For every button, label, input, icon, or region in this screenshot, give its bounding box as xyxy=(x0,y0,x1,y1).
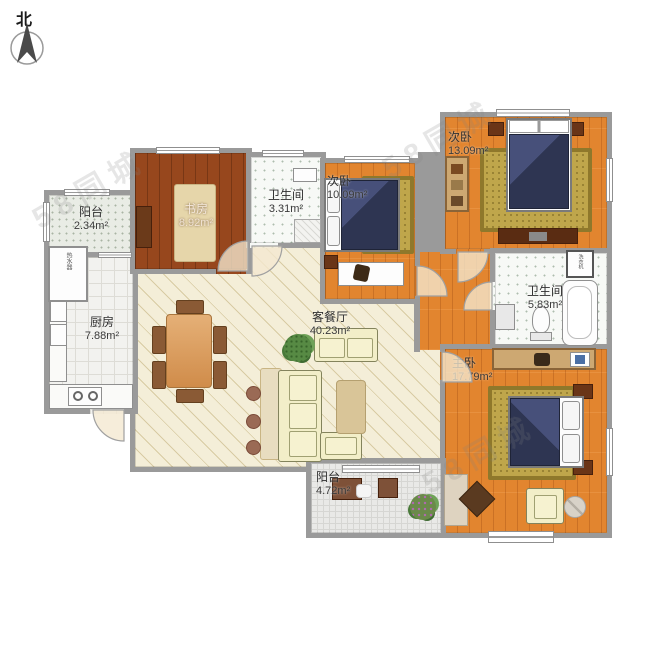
water-heater-cabinet: 热水器 xyxy=(48,246,88,302)
master-lamp xyxy=(564,496,586,518)
bay-window-master-south xyxy=(488,531,554,543)
wall-between-bedrooms xyxy=(418,152,442,252)
bedroom-a-nightstand xyxy=(324,255,338,269)
door-opening-study xyxy=(216,269,246,274)
kitchen-sink-lower xyxy=(50,324,67,346)
sofa-cushion xyxy=(289,403,317,429)
dining-table xyxy=(166,314,212,388)
decor-dot-1 xyxy=(246,386,261,401)
label-study: 书房8.92m² xyxy=(166,202,226,231)
master-armchair xyxy=(526,488,564,524)
tv-item xyxy=(529,232,547,241)
armchair-cushion xyxy=(534,495,557,519)
dining-chair-bottom xyxy=(176,389,204,403)
sliding-door-living-balcony xyxy=(342,465,420,473)
master-duvet xyxy=(510,398,560,466)
label-bedroom-b: 次卧13.09m² xyxy=(448,130,488,159)
bedroom-b-tv-stand xyxy=(498,228,578,244)
bath-main-sink xyxy=(495,304,515,330)
label-balcony-left: 阳台2.34m² xyxy=(60,205,122,234)
bedroom-b-duvet xyxy=(509,134,569,209)
bedroom-b-pillows xyxy=(509,120,569,133)
sofa-cushion xyxy=(289,431,317,457)
bedroom-b-nightstand-left xyxy=(488,122,504,136)
dining-chair-left-2 xyxy=(152,361,166,389)
door-opening-entry xyxy=(90,409,124,414)
label-living: 客餐厅40.23m² xyxy=(295,310,365,339)
washing-machine-label: 洗衣机 xyxy=(578,254,583,269)
bath-small-shower xyxy=(294,219,321,243)
wall-hall-living xyxy=(414,300,420,352)
wardrobe-item xyxy=(451,196,463,206)
water-heater-label: 热水器 xyxy=(65,252,71,270)
bedroom-a-desk xyxy=(338,262,404,286)
door-opening-bath-small xyxy=(250,243,278,248)
sofa-cushion xyxy=(347,338,373,358)
door-arc-entry xyxy=(93,410,124,441)
window-bedroom-b-east xyxy=(606,158,613,202)
window-balcony-left-west xyxy=(43,202,50,242)
wardrobe-item xyxy=(451,164,463,174)
door-balcony-kitchen xyxy=(98,252,132,258)
compass-arrow-icon xyxy=(4,20,50,66)
sofa-cushion xyxy=(325,437,357,455)
window-bedroom-b-north xyxy=(496,109,570,117)
door-opening-bedroom-a xyxy=(415,266,420,296)
window-master-east xyxy=(606,428,613,476)
door-opening-master xyxy=(440,352,445,380)
balcony-plant xyxy=(410,494,436,520)
sofa-cushion xyxy=(289,375,317,401)
label-bedroom-a: 次卧10.09m² xyxy=(327,174,367,203)
label-balcony-bottom: 阳台4.72m² xyxy=(316,470,350,499)
study-desk xyxy=(136,206,152,248)
decor-dot-2 xyxy=(246,414,261,429)
window-bath-small xyxy=(262,150,304,157)
coffee-table xyxy=(336,380,366,434)
master-pillow-bottom xyxy=(562,434,580,463)
decor-dot-3 xyxy=(246,440,261,455)
floorplan-page: { "compass": { "label": "北" }, "rooms": … xyxy=(0,0,650,650)
dining-chair-right-2 xyxy=(213,361,227,389)
bath-small-sink xyxy=(293,168,317,182)
label-kitchen: 厨房7.88m² xyxy=(72,315,132,344)
master-pillow-top xyxy=(562,401,580,430)
washing-machine: 洗衣机 xyxy=(566,250,594,278)
dining-chair-top xyxy=(176,300,204,314)
dining-chair-left-1 xyxy=(152,326,166,354)
wardrobe-boot-item xyxy=(534,353,550,366)
label-bath-main: 卫生间5.83m² xyxy=(515,284,575,313)
label-master: 主卧17.79m² xyxy=(452,356,492,385)
door-opening-bedroom-b xyxy=(456,249,484,254)
sofa-cushion xyxy=(319,338,345,358)
balcony-object xyxy=(356,484,372,498)
sofa-vertical xyxy=(278,370,322,462)
window-bedroom-a xyxy=(344,156,410,163)
window-balcony-left-north xyxy=(64,189,110,196)
wardrobe-item xyxy=(451,180,463,190)
shirt-icon xyxy=(575,355,585,364)
wardrobe-shirt-item xyxy=(570,352,590,367)
stove-burner-right xyxy=(88,391,98,401)
sofa-chaise xyxy=(320,432,362,460)
label-bath-small: 卫生间3.31m² xyxy=(256,188,316,217)
bedroom-a-pillow-bottom xyxy=(327,216,340,246)
hallway-floor xyxy=(416,246,494,350)
stove-burner-left xyxy=(73,391,83,401)
toilet-tank xyxy=(530,332,552,341)
dining-chair-right-1 xyxy=(213,326,227,354)
balcony-mat-2 xyxy=(378,478,398,498)
kitchen-sink-upper xyxy=(50,300,67,322)
master-wardrobe xyxy=(492,348,596,370)
window-study xyxy=(156,147,220,154)
bedroom-b-wardrobe xyxy=(445,156,469,212)
